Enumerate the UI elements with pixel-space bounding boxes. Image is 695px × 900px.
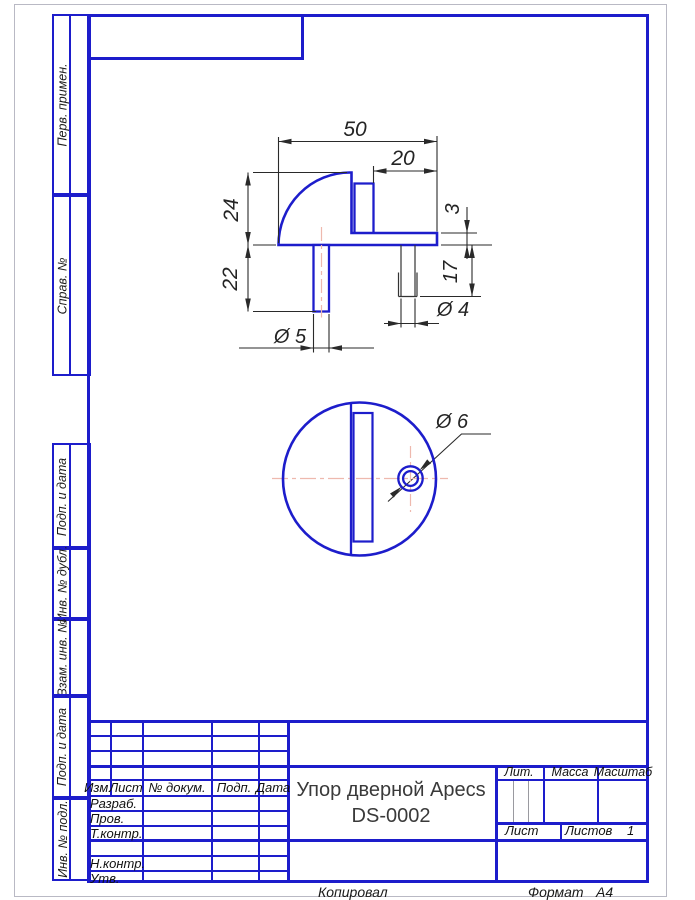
margin-box-inv-podl: Инв. № подл. bbox=[52, 796, 91, 881]
role-nkontr: Н.контр. bbox=[90, 856, 145, 871]
margin-label: Взам. инв. № bbox=[56, 619, 70, 696]
format-label: Формат bbox=[528, 884, 584, 900]
role-prov: Пров. bbox=[90, 811, 124, 826]
format-value: А4 bbox=[596, 884, 613, 900]
margin-label: Перв. примен. bbox=[56, 63, 70, 146]
sheet-label: Лист bbox=[505, 823, 538, 838]
mass-label: Масса bbox=[552, 765, 589, 779]
drawing-sheet: 50 20 24 22 3 17 Ø 5 Ø 4 Ø 6 Перв. приме bbox=[0, 0, 695, 900]
margin-box-vzam-inv: Взам. инв. № bbox=[52, 617, 91, 698]
part-title-line1: Упор дверной Apecs bbox=[296, 777, 485, 803]
margin-label: Подп. и дата bbox=[56, 457, 70, 535]
role-utv: Утв. bbox=[90, 871, 120, 886]
part-title-line2: DS-0002 bbox=[352, 803, 431, 829]
rev-col-docnum: № докум. bbox=[148, 780, 205, 795]
margin-label: Подп. и дата bbox=[56, 708, 70, 786]
lit-label: Лит. bbox=[504, 765, 533, 779]
top-left-stamp-box bbox=[87, 14, 304, 60]
rev-col-podp: Подп. bbox=[217, 780, 252, 795]
margin-label: Инв. № подл. bbox=[56, 800, 70, 878]
part-title: Упор дверной Apecs DS-0002 bbox=[288, 768, 494, 838]
sheets-label: Листов bbox=[565, 823, 612, 838]
margin-label: Справ. № bbox=[56, 257, 70, 314]
copied-label: Копировал bbox=[318, 884, 388, 900]
rev-col-data: Дата bbox=[256, 780, 290, 795]
margin-box-sprav-no: Справ. № bbox=[52, 195, 91, 376]
role-razrab: Разраб. bbox=[90, 796, 137, 811]
margin-box-podp-data-1: Подп. и дата bbox=[52, 443, 91, 550]
scale-label: Масштаб bbox=[594, 765, 652, 779]
rev-col-izm: Изм. bbox=[84, 780, 112, 795]
role-tkontr: Т.контр. bbox=[90, 826, 142, 841]
sheets-value: 1 bbox=[627, 823, 634, 838]
margin-label: Инв. № дубл. bbox=[56, 545, 70, 622]
title-block: Изм. Лист № докум. Подп. Дата Разраб. Пр… bbox=[87, 720, 649, 883]
margin-box-inv-dubl: Инв. № дубл. bbox=[52, 546, 91, 621]
margin-box-perv-primen: Перв. примен. bbox=[52, 14, 91, 195]
rev-col-list: Лист bbox=[109, 780, 142, 795]
